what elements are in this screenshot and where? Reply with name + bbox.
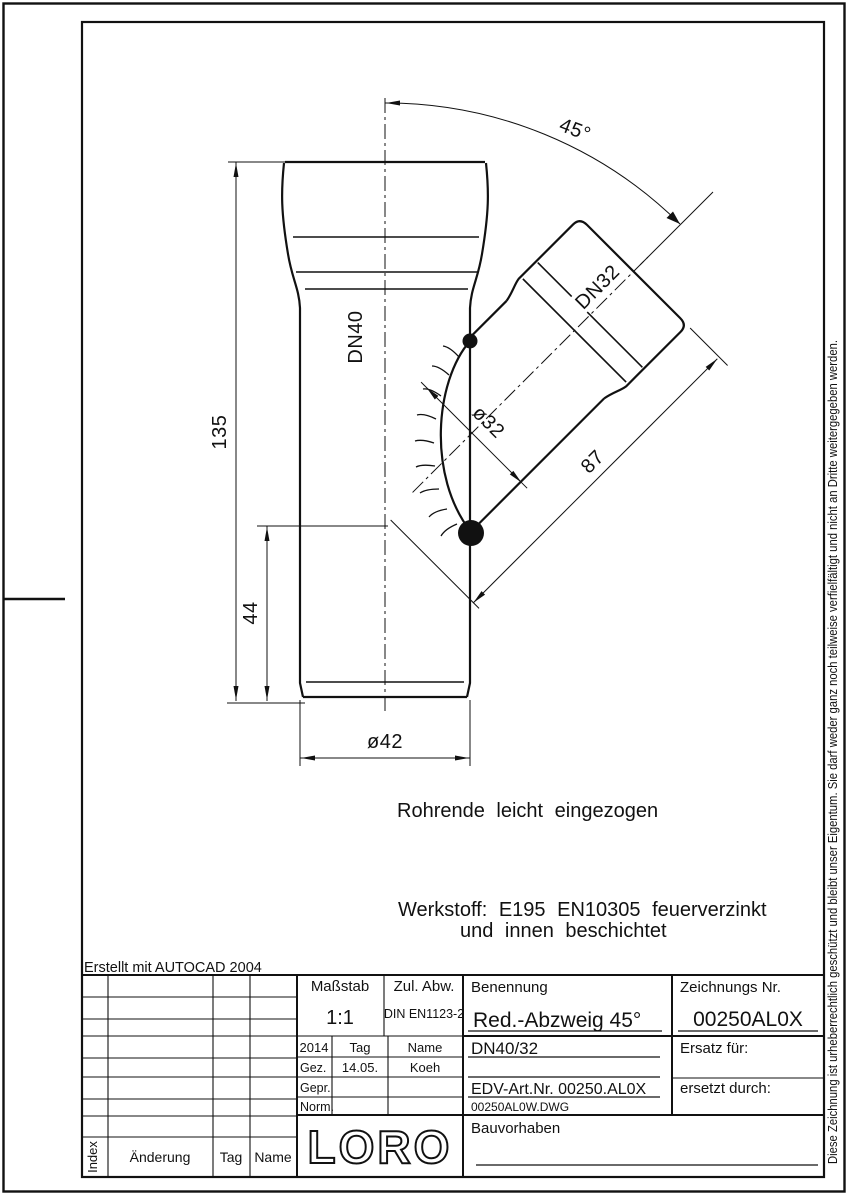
arrowhead	[234, 686, 239, 700]
zeichnungs-nr-label: Zeichnungs Nr.	[680, 979, 781, 996]
masstab-label: Maßstab	[311, 978, 369, 995]
branch-pipe: DN32 ø32 87	[334, 203, 742, 611]
main-pipe-left-edge	[282, 163, 303, 697]
arrowhead	[265, 686, 270, 700]
zeichnungs-nr-value: 00250AL0X	[693, 1008, 803, 1031]
revision-tag-label: Tag	[220, 1149, 243, 1165]
dim-total-height-text: 135	[209, 415, 231, 450]
note-material-line1: Werkstoff: E195 EN10305 feuerverzinkt	[398, 899, 767, 921]
axis-extension-line	[640, 192, 713, 265]
bauvorhaben-label: Bauvorhaben	[471, 1120, 560, 1137]
technical-drawing-canvas: DN32 ø32 87	[0, 0, 849, 1200]
angle-arc	[385, 103, 680, 224]
arrowhead	[301, 756, 315, 761]
extension-line	[690, 328, 727, 365]
masstab-value: 1:1	[326, 1007, 354, 1029]
col-tag-label: Tag	[350, 1040, 371, 1055]
gez-tag: 14.05.	[342, 1060, 378, 1075]
arrowhead	[706, 357, 719, 370]
branch-upper-edge	[468, 301, 507, 340]
zul-abw-label: Zul. Abw.	[394, 978, 455, 995]
dim-branch-height: 44	[240, 526, 388, 701]
arrowhead	[455, 756, 469, 761]
zul-abw-value: DIN EN1123-2	[384, 1007, 464, 1021]
dn-branch-label: DN32	[571, 261, 624, 314]
drawing-sheet: DN32 ø32 87	[0, 0, 849, 1200]
year-value: 2014	[300, 1040, 329, 1055]
gez-name: Koeh	[410, 1060, 440, 1075]
dim-branch-dia: ø32	[419, 361, 548, 490]
loro-logo: LORO	[308, 1121, 453, 1173]
arrowhead	[472, 591, 485, 604]
dim-branch-dia-text: ø32	[468, 402, 509, 443]
note-pipe-end: Rohrende leicht eingezogen	[397, 800, 658, 822]
created-with-note: Erstellt mit AUTOCAD 2004	[84, 960, 262, 976]
col-name-label: Name	[408, 1040, 443, 1055]
dn-main-label: DN40	[345, 310, 367, 363]
dim-main-dia-text: ø42	[367, 731, 403, 753]
note-material-line2: und innen beschichtet	[460, 920, 667, 942]
dim-angle: 45°	[385, 101, 713, 266]
norm-label: Norm.	[300, 1100, 334, 1114]
revision-name-label: Name	[254, 1149, 292, 1165]
aenderung-label: Änderung	[130, 1149, 191, 1165]
main-pipe	[282, 98, 488, 712]
weld-seam	[415, 334, 484, 547]
copyright-vertical-note: Diese Zeichnung ist urheberrechtlich ges…	[826, 340, 840, 1164]
dim-branch-height-text: 44	[240, 601, 262, 624]
weld-seam-curve	[441, 341, 471, 532]
dim-line	[421, 382, 527, 488]
gepr-label: Gepr.	[300, 1081, 331, 1095]
revision-table-grid	[82, 975, 297, 1177]
gez-label: Gez.	[300, 1061, 326, 1075]
index-label: Index	[85, 1141, 100, 1173]
ersetzt-label: ersetzt durch:	[680, 1080, 771, 1097]
dim-angle-text: 45°	[556, 114, 594, 146]
size-value: DN40/32	[471, 1039, 538, 1058]
benennung-label: Benennung	[471, 979, 548, 996]
ersatz-label: Ersatz für:	[680, 1040, 748, 1057]
weld-point-lower	[458, 520, 484, 546]
arrowhead	[265, 527, 270, 541]
benennung-value: Red.-Abzweig 45°	[473, 1009, 641, 1032]
inner-frame	[82, 22, 824, 1177]
arrowhead	[234, 163, 239, 177]
title-block: Maßstab 1:1 Zul. Abw. DIN EN1123-2 2014 …	[82, 975, 824, 1177]
weld-seam-hatching	[415, 346, 459, 536]
dim-branch-length-text: 87	[577, 446, 609, 478]
weld-point-upper	[463, 334, 478, 349]
arrowhead	[386, 101, 400, 106]
edv-art-nr: EDV-Art.Nr. 00250.AL0X	[471, 1081, 647, 1098]
arrowhead	[510, 471, 523, 484]
dwg-file: 00250AL0W.DWG	[471, 1100, 569, 1114]
